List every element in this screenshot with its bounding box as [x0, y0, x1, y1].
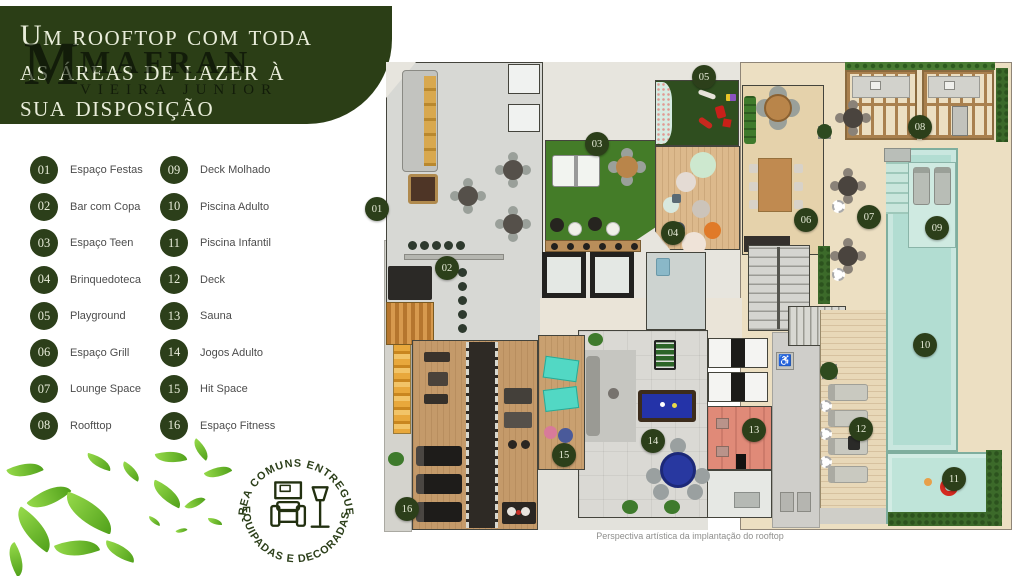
elevator-1 — [542, 252, 586, 298]
deck-rosette-2 — [820, 428, 832, 440]
games-bush-2 — [664, 500, 680, 514]
plan-marker-02: 02 — [435, 256, 459, 280]
plan-marker-13: 13 — [742, 418, 766, 442]
tv-lounge-sofa — [586, 356, 600, 436]
accessibility-sign: ♿ — [776, 352, 794, 370]
beanbag-1 — [550, 218, 564, 232]
pool-steps-ledge — [884, 148, 911, 162]
rosette-table-2 — [832, 268, 845, 281]
deck-rosette-3 — [820, 456, 832, 468]
elevator-2 — [590, 252, 634, 298]
sun-lounger-4 — [828, 466, 868, 483]
teen-counter-stools — [551, 243, 558, 250]
running-track — [466, 342, 498, 528]
plan-caption: Perspectiva artística da implantação do … — [560, 531, 820, 541]
play-pouf-orange — [704, 222, 721, 239]
weight-machine-1 — [428, 372, 448, 386]
core-bathroom-fixture — [656, 258, 670, 276]
play-rug-4 — [692, 200, 710, 218]
plan-marker-16: 16 — [395, 497, 419, 521]
coffee-station — [388, 266, 432, 300]
wet-lounger-1 — [913, 167, 930, 205]
plan-marker-12: 12 — [849, 417, 873, 441]
tv-lounge-table — [608, 388, 619, 399]
hedge-bottom — [888, 512, 988, 526]
playground-sand-edge — [656, 82, 672, 144]
lounge-table-1 — [843, 108, 863, 128]
corridor-bench-1 — [780, 492, 794, 512]
playground-toy-red-2 — [722, 118, 731, 127]
hedge-mid — [818, 246, 830, 304]
exercise-ball-pink — [544, 426, 557, 439]
plan-marker-04: 04 — [661, 221, 685, 245]
grill-sink-2 — [944, 81, 955, 90]
grill-counter-1 — [852, 76, 910, 98]
plan-marker-14: 14 — [641, 429, 665, 453]
party-round-table-3 — [503, 214, 523, 234]
bar-stools-row — [408, 241, 417, 250]
lounge-table-2 — [838, 176, 858, 196]
deck-tree — [820, 362, 838, 380]
exercise-ball-blue — [558, 428, 573, 443]
floor-plan: ♿ — [0, 0, 1024, 576]
games-bush-1 — [622, 500, 638, 514]
bar-stools-col — [458, 268, 467, 277]
plan-marker-03: 03 — [585, 132, 609, 156]
rest-bench — [734, 492, 760, 508]
deck-walk-bottom — [820, 508, 886, 524]
play-rug-1 — [690, 152, 716, 178]
treadmill-1 — [416, 446, 462, 466]
plan-marker-08: 08 — [908, 115, 932, 139]
plan-marker-11: 11 — [942, 467, 966, 491]
playground-toy-purple — [726, 94, 736, 101]
teen-counter — [545, 240, 641, 252]
grill-round-table — [764, 94, 792, 122]
weight-machine-2 — [424, 394, 448, 404]
dumbbell-rack — [424, 352, 450, 362]
rosette-table-1 — [832, 200, 845, 213]
beanbag-4 — [606, 222, 620, 236]
standing-grill — [952, 106, 968, 136]
plan-marker-07: 07 — [857, 205, 881, 229]
treadmill-3 — [416, 502, 462, 522]
party-round-table-2 — [503, 160, 523, 180]
planter-top — [845, 62, 995, 70]
sneakers — [507, 507, 516, 516]
plan-marker-05: 05 — [692, 65, 716, 89]
lounge-tree — [817, 124, 832, 139]
plan-marker-09: 09 — [925, 216, 949, 240]
gym-machine-right-1 — [504, 388, 532, 404]
core-bathroom — [646, 252, 706, 330]
gym-bench — [508, 440, 517, 449]
lounge-table-3 — [838, 246, 858, 266]
yoga-mat-2 — [543, 386, 579, 412]
pool-table-balls — [660, 402, 665, 407]
teen-table — [616, 156, 638, 178]
sun-lounger-1 — [828, 384, 868, 401]
shower-stall-2 — [708, 372, 768, 402]
play-rug-2 — [676, 172, 696, 192]
plan-marker-06: 06 — [794, 208, 818, 232]
grill-chairs-left — [749, 164, 758, 173]
grill-sink-1 — [870, 81, 881, 90]
balcony-plant — [388, 452, 404, 466]
sauna-bench-1 — [716, 418, 729, 429]
party-round-table-1 — [458, 186, 478, 206]
party-wc-1 — [508, 64, 540, 94]
plan-marker-15: 15 — [552, 443, 576, 467]
beanbag-2 — [568, 222, 582, 236]
plan-marker-10: 10 — [913, 333, 937, 357]
poster-canvas: Um rooftop com todaas áreas de lazer àsu… — [0, 0, 1024, 576]
party-square-table — [408, 174, 438, 204]
beanbag-3 — [588, 217, 602, 231]
corridor-bench-2 — [797, 492, 811, 512]
pool-table — [638, 390, 696, 422]
gym-machine-right-2 — [504, 412, 532, 428]
poker-table — [660, 452, 696, 488]
grill-chairs-right — [794, 164, 803, 173]
play-blocks — [672, 194, 681, 203]
hedge-infant-right — [986, 450, 1002, 526]
grill-dining-table — [758, 158, 792, 212]
shower-stall-1 — [708, 338, 768, 368]
wet-lounger-2 — [934, 167, 951, 205]
vertical-garden — [744, 96, 756, 144]
games-bush-3 — [588, 333, 603, 346]
sauna-bench-2 — [716, 446, 729, 457]
pingpong-table — [552, 155, 600, 187]
deck-rosette-1 — [820, 400, 832, 412]
plan-marker-01: 01 — [365, 197, 389, 221]
party-wc-2 — [508, 104, 540, 132]
core-stairs-rail — [777, 247, 780, 329]
foosball-table — [654, 340, 676, 370]
sofa-cushions — [424, 76, 436, 166]
bar-cabinet — [386, 302, 434, 345]
treadmill-2 — [416, 474, 462, 494]
sauna-stove — [736, 454, 746, 469]
hedge-right-top — [996, 68, 1008, 142]
yoga-mat-1 — [543, 356, 580, 383]
pool-toy — [924, 478, 932, 486]
